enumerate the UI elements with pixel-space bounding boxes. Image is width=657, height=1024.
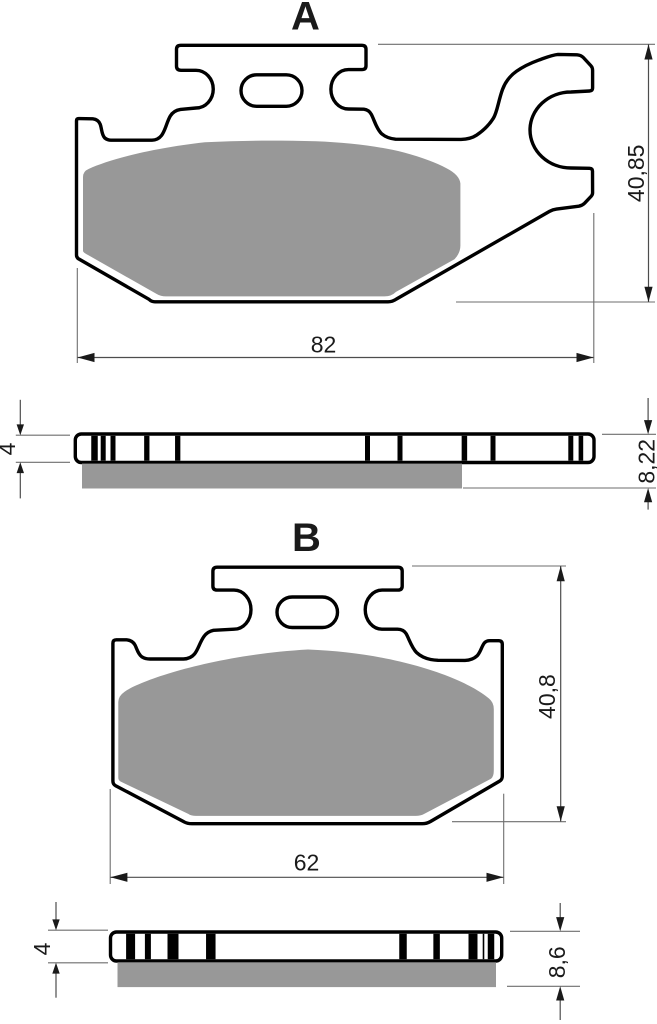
svg-text:8,6: 8,6 <box>544 946 570 978</box>
svg-text:62: 62 <box>294 849 320 875</box>
svg-text:A: A <box>291 0 320 39</box>
svg-text:4: 4 <box>0 442 20 455</box>
svg-text:40,8: 40,8 <box>534 674 560 719</box>
svg-text:4: 4 <box>29 942 55 955</box>
svg-text:B: B <box>292 516 321 560</box>
svg-text:8,22: 8,22 <box>634 439 657 484</box>
svg-text:40,85: 40,85 <box>623 145 649 203</box>
svg-text:82: 82 <box>311 331 337 357</box>
